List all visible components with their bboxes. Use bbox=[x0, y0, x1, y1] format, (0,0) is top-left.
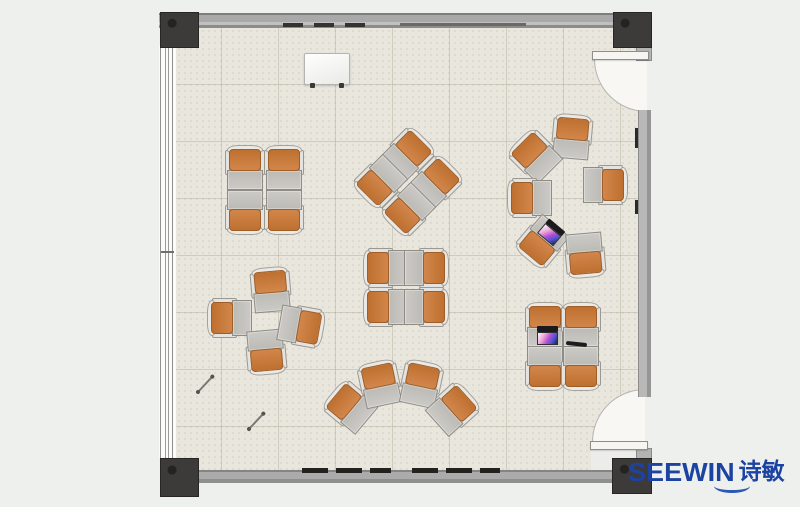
desk-chair-unit bbox=[266, 146, 302, 190]
desk-chair-unit bbox=[404, 250, 448, 286]
desk-chair-unit bbox=[563, 346, 599, 390]
desk-surface bbox=[266, 170, 302, 190]
chair-seat bbox=[268, 209, 300, 231]
desk-surface bbox=[227, 170, 263, 190]
wall-rail-marks-bottom-left bbox=[302, 468, 391, 473]
desk-chair-unit bbox=[508, 180, 552, 216]
desk-chair-unit bbox=[276, 304, 326, 347]
wall-rail-line-top bbox=[400, 23, 526, 26]
door-leaf-top bbox=[592, 51, 649, 60]
wall-rail-marks-bottom-right bbox=[412, 468, 500, 473]
desk-chair-unit bbox=[364, 250, 408, 286]
chair-seat bbox=[211, 302, 233, 334]
column-top-right bbox=[613, 12, 652, 48]
chair-seat bbox=[367, 252, 389, 284]
desk-surface bbox=[404, 289, 424, 325]
chair-seat bbox=[250, 348, 284, 373]
desk-chair-unit bbox=[364, 289, 408, 325]
laptop bbox=[537, 326, 558, 344]
chair-seat bbox=[423, 252, 445, 284]
seewin-logo: SEEWIN诗敏 bbox=[628, 452, 800, 494]
desk-surface bbox=[404, 250, 424, 286]
window-mullion-tick bbox=[161, 251, 174, 253]
column-top-left bbox=[160, 12, 199, 48]
wall-rail-marks-top bbox=[283, 23, 375, 27]
chair-seat bbox=[229, 149, 261, 171]
chair-seat bbox=[565, 306, 597, 328]
desk-surface bbox=[527, 346, 563, 366]
desk-chair-unit bbox=[565, 232, 605, 279]
desk-chair-unit bbox=[583, 167, 627, 203]
door-frame-mark bbox=[635, 200, 638, 214]
door-leaf-bottom bbox=[590, 441, 648, 450]
desk-surface bbox=[583, 167, 603, 203]
chair-seat bbox=[565, 365, 597, 387]
door-frame-mark bbox=[635, 128, 638, 148]
wall-bottom bbox=[197, 470, 616, 483]
desk-chair-unit bbox=[227, 146, 263, 190]
chair-seat bbox=[253, 270, 287, 295]
desk-surface bbox=[563, 346, 599, 366]
desk-chair-unit bbox=[527, 346, 563, 390]
desk-chair-unit bbox=[208, 300, 252, 336]
chair-seat bbox=[367, 291, 389, 323]
column-bottom-left bbox=[160, 458, 199, 497]
desk-chair-unit bbox=[358, 359, 402, 410]
desk-chair-unit bbox=[227, 190, 263, 234]
desk-chair-unit bbox=[266, 190, 302, 234]
desk-surface bbox=[227, 190, 263, 210]
desk-surface bbox=[266, 190, 302, 210]
chair-seat bbox=[529, 365, 561, 387]
mobile-whiteboard bbox=[304, 53, 350, 85]
logo-chinese-text: 诗敏 bbox=[739, 458, 785, 484]
chair-seat bbox=[423, 291, 445, 323]
floor-plan-stage: SEEWIN诗敏 bbox=[0, 0, 800, 507]
desk-chair-unit bbox=[404, 289, 448, 325]
wall-right bbox=[638, 110, 651, 397]
chair-seat bbox=[602, 169, 624, 201]
laptop-screen bbox=[537, 332, 558, 345]
chair-seat bbox=[268, 149, 300, 171]
chair-seat bbox=[569, 251, 603, 276]
chair-seat bbox=[511, 182, 533, 214]
chair-seat bbox=[529, 306, 561, 328]
chair-seat bbox=[556, 117, 590, 142]
logo-swoosh-icon bbox=[714, 479, 750, 493]
desk-surface bbox=[532, 180, 552, 216]
chair-seat bbox=[229, 209, 261, 231]
